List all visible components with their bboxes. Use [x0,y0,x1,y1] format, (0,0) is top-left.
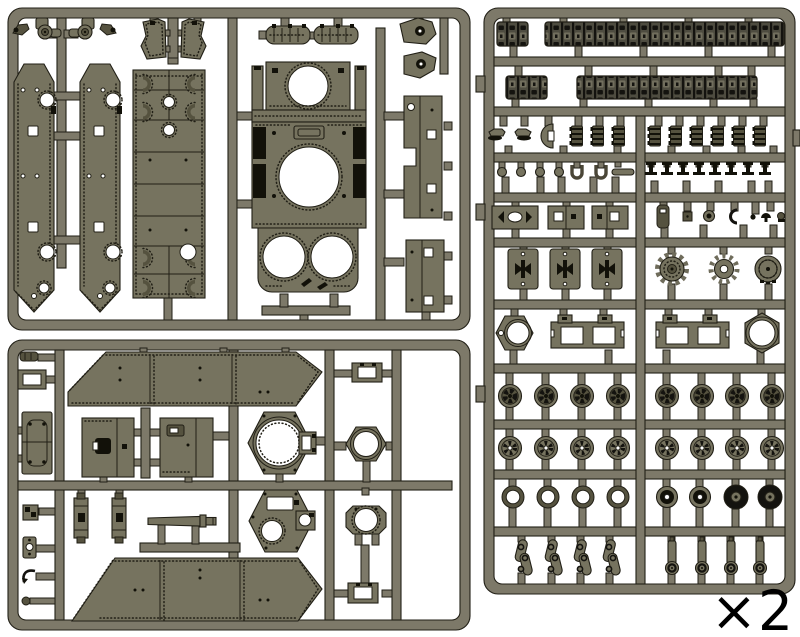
part-hatch-box-1 [82,418,134,477]
part-small-capsule [20,352,38,361]
kit-sprues-illustration: ×2 [0,0,800,637]
sprue-c-running-gear [476,8,800,594]
part-track-run-long-1 [545,22,784,46]
part-tow-shackle-2 [515,129,531,141]
part-small-frame-1 [352,363,382,382]
part-track-run-long-2 [577,76,757,99]
part-detail-plate-1 [492,206,538,229]
part-detail-plate-3 [592,206,628,229]
part-exhaust-muffler-2 [314,24,358,44]
part-side-armor-plate-1 [14,64,56,312]
part-exhaust-muffler-1 [266,24,310,44]
part-superstructure-plate [252,62,366,292]
part-hull-side-plate-upper [68,352,322,406]
part-small-frame-2 [348,583,378,603]
part-trapezoid-plate-2 [181,19,206,59]
part-hull-roof-plate [133,70,205,298]
part-bowtie-plate-1 [508,249,538,289]
sprue-a-hull-upper [8,8,470,330]
part-commander-cupola [346,506,386,534]
part-narrow-door-plate [22,412,52,474]
part-pillar-block-2 [112,493,126,543]
part-track-run-short-2 [506,76,547,99]
part-side-beam-2 [406,240,444,312]
quantity-label: ×2 [690,584,794,637]
part-plug-disc [22,597,30,605]
part-towing-wedge-1 [400,18,436,44]
part-hull-side-plate-lower [72,558,322,621]
part-small-frame-left [18,370,46,389]
part-pin-rod [612,169,634,175]
sprue-b-hull-lower [8,340,470,630]
part-bowtie-plate-2 [550,249,580,289]
part-bowtie-plate-3 [592,249,622,289]
part-pillar-block-1 [74,493,88,543]
part-bracket-with-hole [23,537,36,558]
part-side-armor-plate-2 [80,64,122,312]
part-track-run-short-1 [497,22,528,46]
sprues-graphic [0,0,800,637]
part-hatch-box-2 [160,418,213,477]
part-trapezoid-plate-1 [141,19,166,59]
part-detail-plate-2 [548,206,584,229]
part-drive-sprocket-1 [658,255,687,284]
part-three-step-fitting [23,505,38,520]
